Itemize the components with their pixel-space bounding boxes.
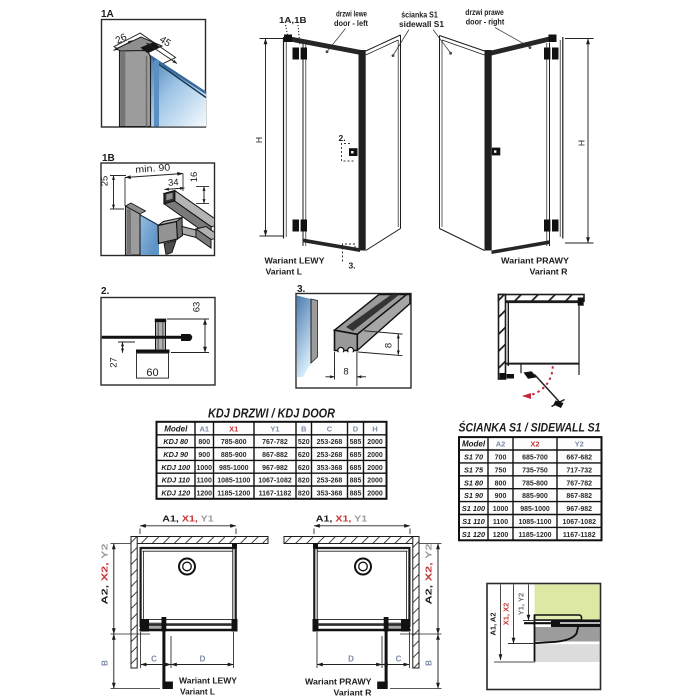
svg-text:785-800: 785-800 [522,480,548,487]
svg-text:ścianka S1: ścianka S1 [401,11,438,20]
svg-text:A1, X1, Y1: A1, X1, Y1 [316,515,368,524]
svg-text:sidewall S1: sidewall S1 [399,20,445,29]
svg-text:Variant L: Variant L [180,687,215,697]
svg-text:S1 100: S1 100 [462,504,485,513]
svg-text:D: D [348,655,354,664]
svg-text:Model: Model [462,440,486,449]
svg-text:KDJ 110: KDJ 110 [162,476,190,485]
svg-text:353-368: 353-368 [317,490,343,497]
svg-text:S1 110: S1 110 [462,517,485,526]
svg-text:KDJ 80: KDJ 80 [163,437,188,446]
svg-text:885-900: 885-900 [522,493,548,500]
svg-text:B: B [425,660,434,666]
svg-text:750: 750 [495,467,507,474]
svg-text:253-268: 253-268 [317,478,343,485]
svg-text:B: B [101,660,110,666]
svg-text:door - left: door - left [334,19,368,28]
svg-text:8: 8 [343,367,348,378]
svg-text:S1 80: S1 80 [464,478,483,487]
svg-text:900: 900 [198,452,210,459]
svg-text:253-268: 253-268 [317,439,343,446]
svg-text:685-700: 685-700 [522,455,548,462]
svg-text:A1: A1 [199,424,209,433]
svg-text:Variant R: Variant R [530,267,568,277]
svg-text:Model: Model [164,424,188,433]
svg-text:685: 685 [350,452,362,459]
svg-text:1000: 1000 [196,465,212,472]
svg-text:ŚCIANKA S1 / SIDEWALL S1: ŚCIANKA S1 / SIDEWALL S1 [459,422,601,435]
svg-text:717-732: 717-732 [566,467,592,474]
svg-text:A2: A2 [496,440,506,449]
svg-text:735-750: 735-750 [522,467,548,474]
svg-text:KDJ DRZWI / KDJ DOOR: KDJ DRZWI / KDJ DOOR [208,407,335,421]
svg-text:Wariant LEWY: Wariant LEWY [179,676,237,686]
svg-text:867-882: 867-882 [262,452,288,459]
svg-text:3.: 3. [349,261,356,271]
svg-text:X1: X1 [229,424,238,433]
svg-text:60: 60 [146,367,158,379]
svg-text:1067-1082: 1067-1082 [563,519,597,526]
svg-text:door - right: door - right [466,18,505,27]
svg-text:H: H [577,140,587,146]
svg-text:885: 885 [350,478,362,485]
svg-text:B: B [301,424,307,433]
svg-text:767-782: 767-782 [262,439,288,446]
svg-text:Y1, Y2: Y1, Y2 [517,593,526,615]
svg-text:2000: 2000 [367,490,383,497]
svg-text:Y2: Y2 [575,440,584,449]
svg-text:1085-1100: 1085-1100 [518,519,551,526]
svg-text:967-982: 967-982 [262,465,288,472]
svg-text:1167-1182: 1167-1182 [563,532,596,539]
svg-text:A1, X1, Y1: A1, X1, Y1 [162,515,214,524]
svg-text:2.: 2. [339,133,346,143]
svg-text:2000: 2000 [367,465,383,472]
svg-text:820: 820 [298,478,310,485]
svg-text:S1 70: S1 70 [464,453,483,462]
svg-text:16: 16 [189,172,200,183]
svg-text:885: 885 [350,490,362,497]
svg-text:H: H [254,137,264,143]
svg-text:1167-1182: 1167-1182 [259,490,292,497]
svg-text:S1 75: S1 75 [464,465,484,474]
svg-text:X1, X2: X1, X2 [502,603,511,626]
svg-text:1200: 1200 [196,490,212,497]
svg-text:900: 900 [495,493,507,500]
svg-text:A1, A2: A1, A2 [489,612,498,635]
svg-text:C: C [327,424,333,433]
svg-text:A2, X2, Y2: A2, X2, Y2 [101,543,110,605]
svg-text:667-682: 667-682 [566,455,592,462]
svg-text:620: 620 [298,452,310,459]
svg-text:785-800: 785-800 [221,439,247,446]
svg-text:Variant R: Variant R [334,688,372,698]
svg-text:KDJ 100: KDJ 100 [161,463,190,472]
svg-text:1100: 1100 [493,519,508,526]
svg-text:KDJ 90: KDJ 90 [163,450,188,459]
svg-text:2000: 2000 [367,478,383,485]
svg-text:2.: 2. [101,286,110,297]
svg-text:drzwi prawe: drzwi prawe [465,8,504,17]
svg-text:drzwi lewe: drzwi lewe [336,10,367,19]
svg-text:Y1: Y1 [270,424,279,433]
svg-text:34: 34 [168,177,179,189]
svg-text:1085-1100: 1085-1100 [217,478,250,485]
svg-text:820: 820 [298,490,310,497]
svg-text:KDJ 120: KDJ 120 [161,488,190,497]
svg-text:Wariant PRAWY: Wariant PRAWY [305,677,372,687]
svg-text:1185-1200: 1185-1200 [518,532,551,539]
svg-text:867-882: 867-882 [566,493,592,500]
svg-text:8: 8 [384,343,395,348]
svg-text:1000: 1000 [493,506,509,513]
svg-text:25: 25 [100,176,111,187]
svg-text:520: 520 [298,439,310,446]
svg-text:985-1000: 985-1000 [520,506,550,513]
svg-text:685: 685 [350,465,362,472]
svg-text:2000: 2000 [367,439,383,446]
svg-text:800: 800 [198,439,210,446]
svg-text:27: 27 [109,357,120,368]
svg-text:2000: 2000 [367,452,383,459]
svg-text:253-268: 253-268 [317,452,343,459]
svg-text:D: D [200,655,206,664]
svg-text:C: C [396,655,402,664]
svg-text:1067-1082: 1067-1082 [258,478,292,485]
svg-text:Variant L: Variant L [266,267,303,277]
svg-text:700: 700 [495,455,507,462]
svg-text:D: D [353,424,359,433]
svg-text:X2: X2 [530,440,539,449]
svg-text:C: C [151,655,157,664]
svg-text:H: H [372,424,377,433]
svg-text:885-900: 885-900 [221,452,247,459]
svg-text:Wariant LEWY: Wariant LEWY [265,256,325,266]
svg-text:353-368: 353-368 [317,465,343,472]
svg-text:S1 120: S1 120 [462,530,485,539]
svg-text:S1 90: S1 90 [464,491,483,500]
svg-text:1100: 1100 [197,478,212,485]
svg-text:A2, X2, Y2: A2, X2, Y2 [425,543,434,605]
svg-text:967-982: 967-982 [566,506,592,513]
svg-text:1A,1B: 1A,1B [279,15,307,25]
svg-text:585: 585 [350,439,362,446]
svg-text:620: 620 [298,465,310,472]
svg-text:1200: 1200 [493,532,509,539]
svg-text:767-782: 767-782 [566,480,592,487]
svg-text:1185-1200: 1185-1200 [217,490,250,497]
svg-text:Wariant PRAWY: Wariant PRAWY [501,256,569,266]
svg-text:63: 63 [192,302,203,313]
svg-text:1A: 1A [101,9,114,20]
svg-text:800: 800 [495,480,507,487]
svg-text:985-1000: 985-1000 [219,465,249,472]
